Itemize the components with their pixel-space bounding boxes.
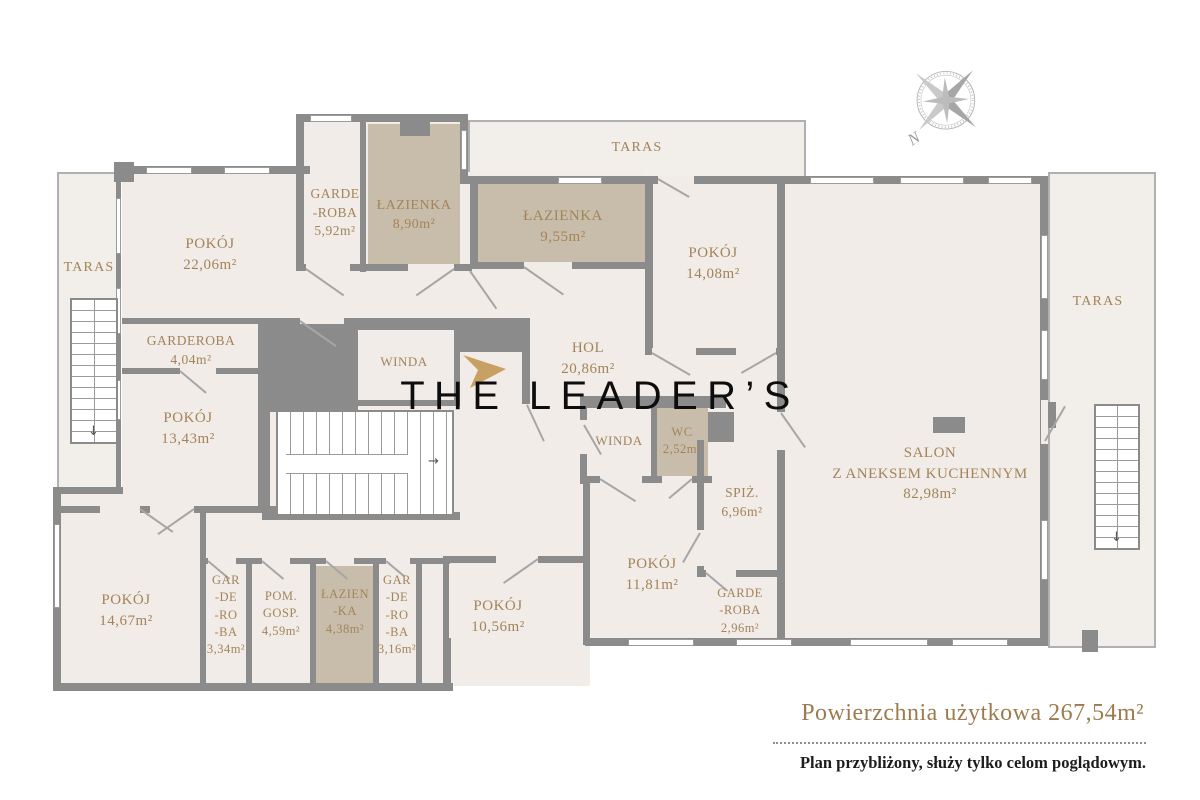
floor-plan-canvas: ↓ → ↓ TARAS POKÓJ22,06m² GARDE -ROBA5,92… [0, 0, 1200, 800]
room-label-garderoba-592: GARDE -ROBA5,92m² [301, 185, 369, 241]
window [900, 177, 964, 184]
room-label-winda-left: WINDA [356, 353, 452, 371]
room-label-pokoj-1181: POKÓJ11,81m² [594, 554, 710, 595]
room-label-gar-316: GAR -DE -RO -BA3,16m² [375, 572, 419, 658]
stairs-down-arrow: ↓ [1111, 530, 1122, 545]
brand-logo: THE LEADER’S [300, 374, 900, 419]
door-gap [652, 348, 696, 355]
wall-segment [470, 184, 478, 268]
room-label-lazienka-955: ŁAZIENKA9,55m² [498, 206, 628, 247]
room-label-garderoba-296: GARDE -ROBA2,96m² [704, 585, 776, 637]
window [310, 115, 352, 122]
stairs-rail [94, 300, 95, 442]
window [1041, 235, 1048, 299]
room-label-lazienka-438: ŁAZIEN -KA4,38m² [315, 586, 375, 638]
wall-segment [262, 412, 270, 516]
compass-rose-icon: N [896, 56, 992, 156]
room-label-taras-right: TARAS [1058, 292, 1138, 311]
wall-segment [645, 184, 653, 354]
stairs-down-arrow: ↓ [88, 424, 99, 439]
wall-segment [53, 487, 123, 494]
window [54, 524, 60, 608]
room-label-pom-gosp: POM. GOSP.4,59m² [250, 588, 312, 640]
room-label-pokoj-1056: POKÓJ10,56m² [440, 596, 556, 637]
room-label-pokoj-2206: POKÓJ22,06m² [130, 234, 290, 275]
room-label-winda-center: WINDA [588, 432, 650, 450]
wall-segment [53, 683, 453, 691]
window [736, 639, 792, 646]
window [850, 639, 928, 646]
room-label-wc: WC2,52m² [655, 424, 709, 459]
door-gap [100, 506, 140, 513]
room-label-pokoj-1467: POKÓJ14,67m² [63, 590, 189, 631]
window [810, 177, 874, 184]
window [1041, 520, 1048, 580]
wall-segment [777, 184, 785, 354]
window [461, 130, 467, 170]
staircase-right-terrace [1094, 404, 1140, 550]
window [558, 177, 602, 184]
bathroom-890-floor [368, 124, 460, 266]
wall-segment [1082, 630, 1098, 652]
compass-north-label: N [903, 127, 924, 150]
wall-segment [400, 118, 430, 136]
wall-segment [296, 114, 304, 176]
plan-disclaimer: Plan przybliżony, służy tylko celom pogl… [586, 753, 1146, 773]
room-label-taras-left: TARAS [49, 258, 129, 277]
stairs-right-arrow: → [428, 454, 439, 469]
room-label-pokoj-1408: POKÓJ14,08m² [653, 243, 773, 284]
door-gap [524, 262, 572, 269]
room-label-salon: SALON Z ANEKSEM KUCHENNYM82,98m² [815, 443, 1045, 505]
window [952, 639, 1008, 646]
door-gap [408, 264, 454, 271]
door-gap [300, 318, 344, 324]
wall-segment [583, 483, 590, 645]
stairs-landing [286, 454, 408, 474]
staircase-left-terrace [70, 298, 118, 444]
room-label-gar-334: GAR -DE -RO -BA3,34m² [204, 572, 248, 658]
footer-dotted-divider [773, 742, 1146, 744]
kitchen-island-block [933, 417, 965, 433]
window [988, 177, 1032, 184]
window [628, 639, 694, 646]
window [146, 167, 192, 174]
door-gap [306, 264, 350, 271]
window [116, 198, 121, 254]
room-label-taras-top: TARAS [597, 138, 677, 157]
window [224, 167, 270, 174]
window [1041, 330, 1048, 380]
room-label-spiz: SPIŻ.6,96m² [704, 484, 780, 521]
room-label-pokoj-1343: POKÓJ13,43m² [126, 408, 250, 449]
room-label-lazienka-890: ŁAZIENKA8,90m² [368, 196, 460, 235]
room-label-garderoba-404: GARDEROBA4,04m² [128, 332, 254, 369]
stairs-rail [1117, 406, 1118, 548]
total-usable-area: Powierzchnia użytkowa 267,54m² [584, 700, 1144, 727]
